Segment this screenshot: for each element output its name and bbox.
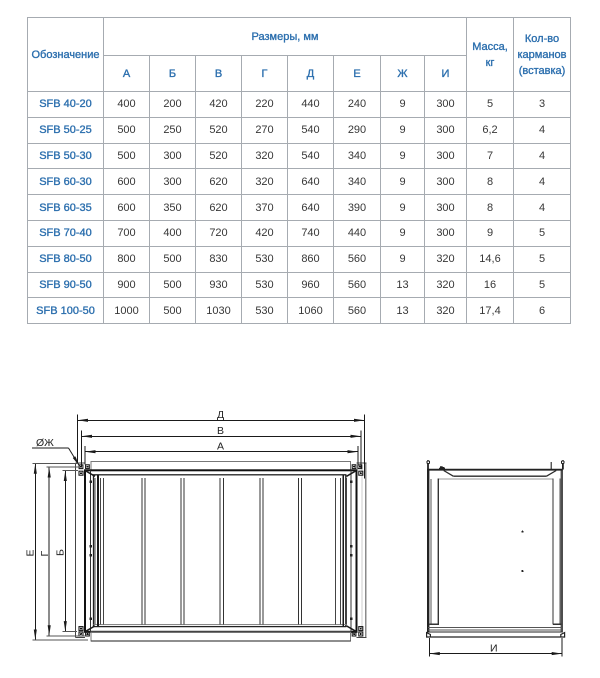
svg-text:А: А [217, 441, 224, 453]
svg-text:Г: Г [39, 551, 51, 557]
svg-text:Е: Е [25, 549, 37, 556]
svg-text:Б: Б [55, 549, 67, 556]
svg-text:И: И [490, 643, 498, 655]
svg-text:Д: Д [217, 409, 224, 421]
svg-text:ØЖ: ØЖ [36, 437, 54, 449]
svg-text:В: В [217, 425, 224, 437]
